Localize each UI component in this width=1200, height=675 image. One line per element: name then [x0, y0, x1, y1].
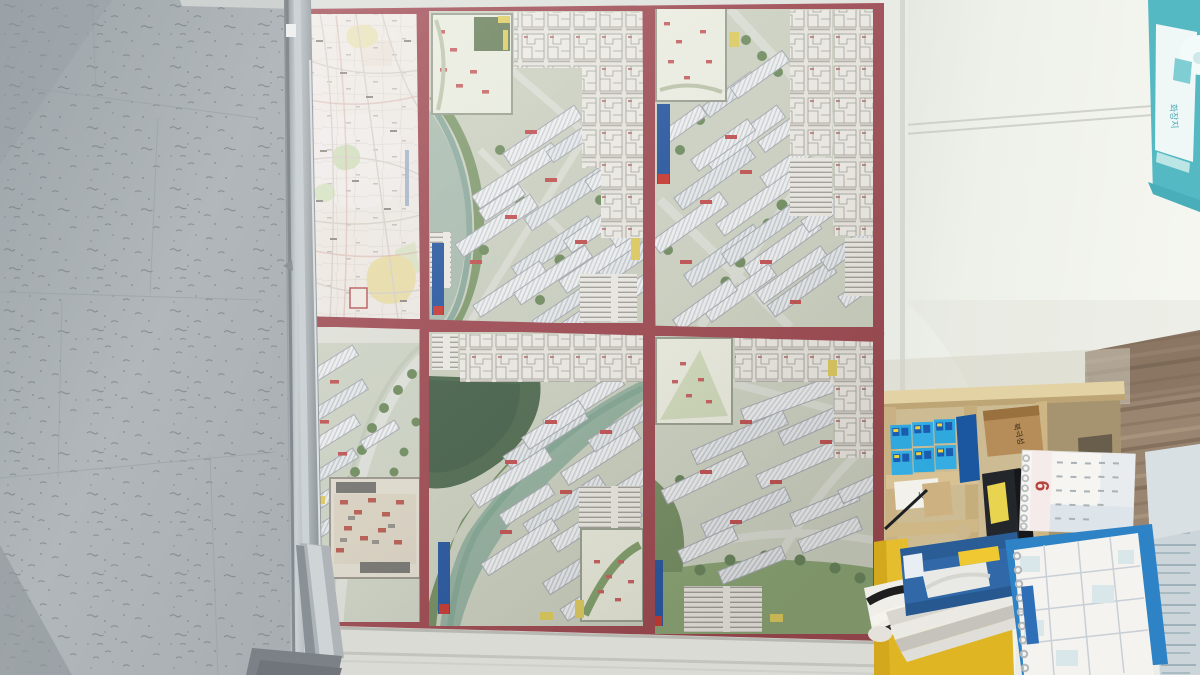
svg-text:화장지: 화장지: [1168, 103, 1180, 128]
svg-text:6: 6: [1030, 481, 1051, 492]
